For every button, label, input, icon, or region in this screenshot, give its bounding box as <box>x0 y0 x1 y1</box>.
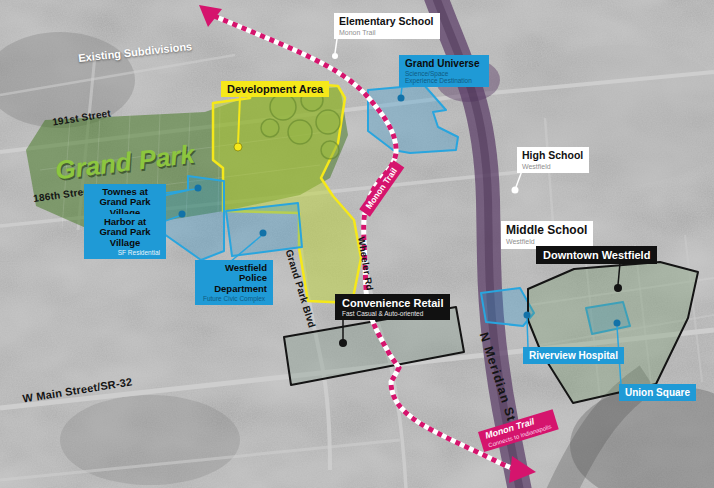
middle-school-sub: Westfield <box>506 238 587 246</box>
harbor-callout: Harbor at Grand Park Village SF Resident… <box>84 214 166 259</box>
riverview-callout: Riverview Hospital <box>523 347 624 364</box>
police-callout: Westfield Police Department Future Civic… <box>195 260 273 305</box>
middle-school-callout: Middle School Westfield <box>501 221 593 249</box>
grand-universe-callout: Grand Universe Science/Space Experience … <box>399 55 489 87</box>
riverview-title: Riverview Hospital <box>529 350 618 361</box>
police-sub: Future Civic Complex <box>201 295 267 302</box>
grand-universe-sub: Science/Space Experience Destination <box>405 70 477 84</box>
union-square-callout: Union Square <box>619 384 696 401</box>
convenience-retail-title: Convenience Retail <box>342 297 443 309</box>
elementary-school-title: Elementary School <box>339 16 434 28</box>
harbor-title: Harbor at Grand Park Village <box>90 217 160 248</box>
map-canvas: Existing Subdivisions 191st Street 186th… <box>0 0 714 488</box>
harbor-sub: SF Residential <box>90 249 160 256</box>
high-school-title: High School <box>522 150 583 162</box>
convenience-retail-callout: Convenience Retail Fast Casual & Auto-or… <box>335 294 450 320</box>
high-school-sub: Westfield <box>522 163 583 171</box>
grand-universe-title: Grand Universe <box>405 58 483 69</box>
downtown-title: Downtown Westfield <box>543 249 650 261</box>
development-area-label: Development Area <box>221 81 329 97</box>
police-title: Westfield Police Department <box>201 263 267 294</box>
convenience-retail-sub: Fast Casual & Auto-oriented <box>342 310 443 317</box>
downtown-callout: Downtown Westfield <box>536 246 657 264</box>
high-school-callout: High School Westfield <box>517 147 589 173</box>
union-square-title: Union Square <box>625 387 690 398</box>
middle-school-title: Middle School <box>506 224 587 237</box>
elementary-school-sub: Monon Trail <box>339 29 434 37</box>
elementary-school-callout: Elementary School Monon Trail <box>334 13 440 39</box>
